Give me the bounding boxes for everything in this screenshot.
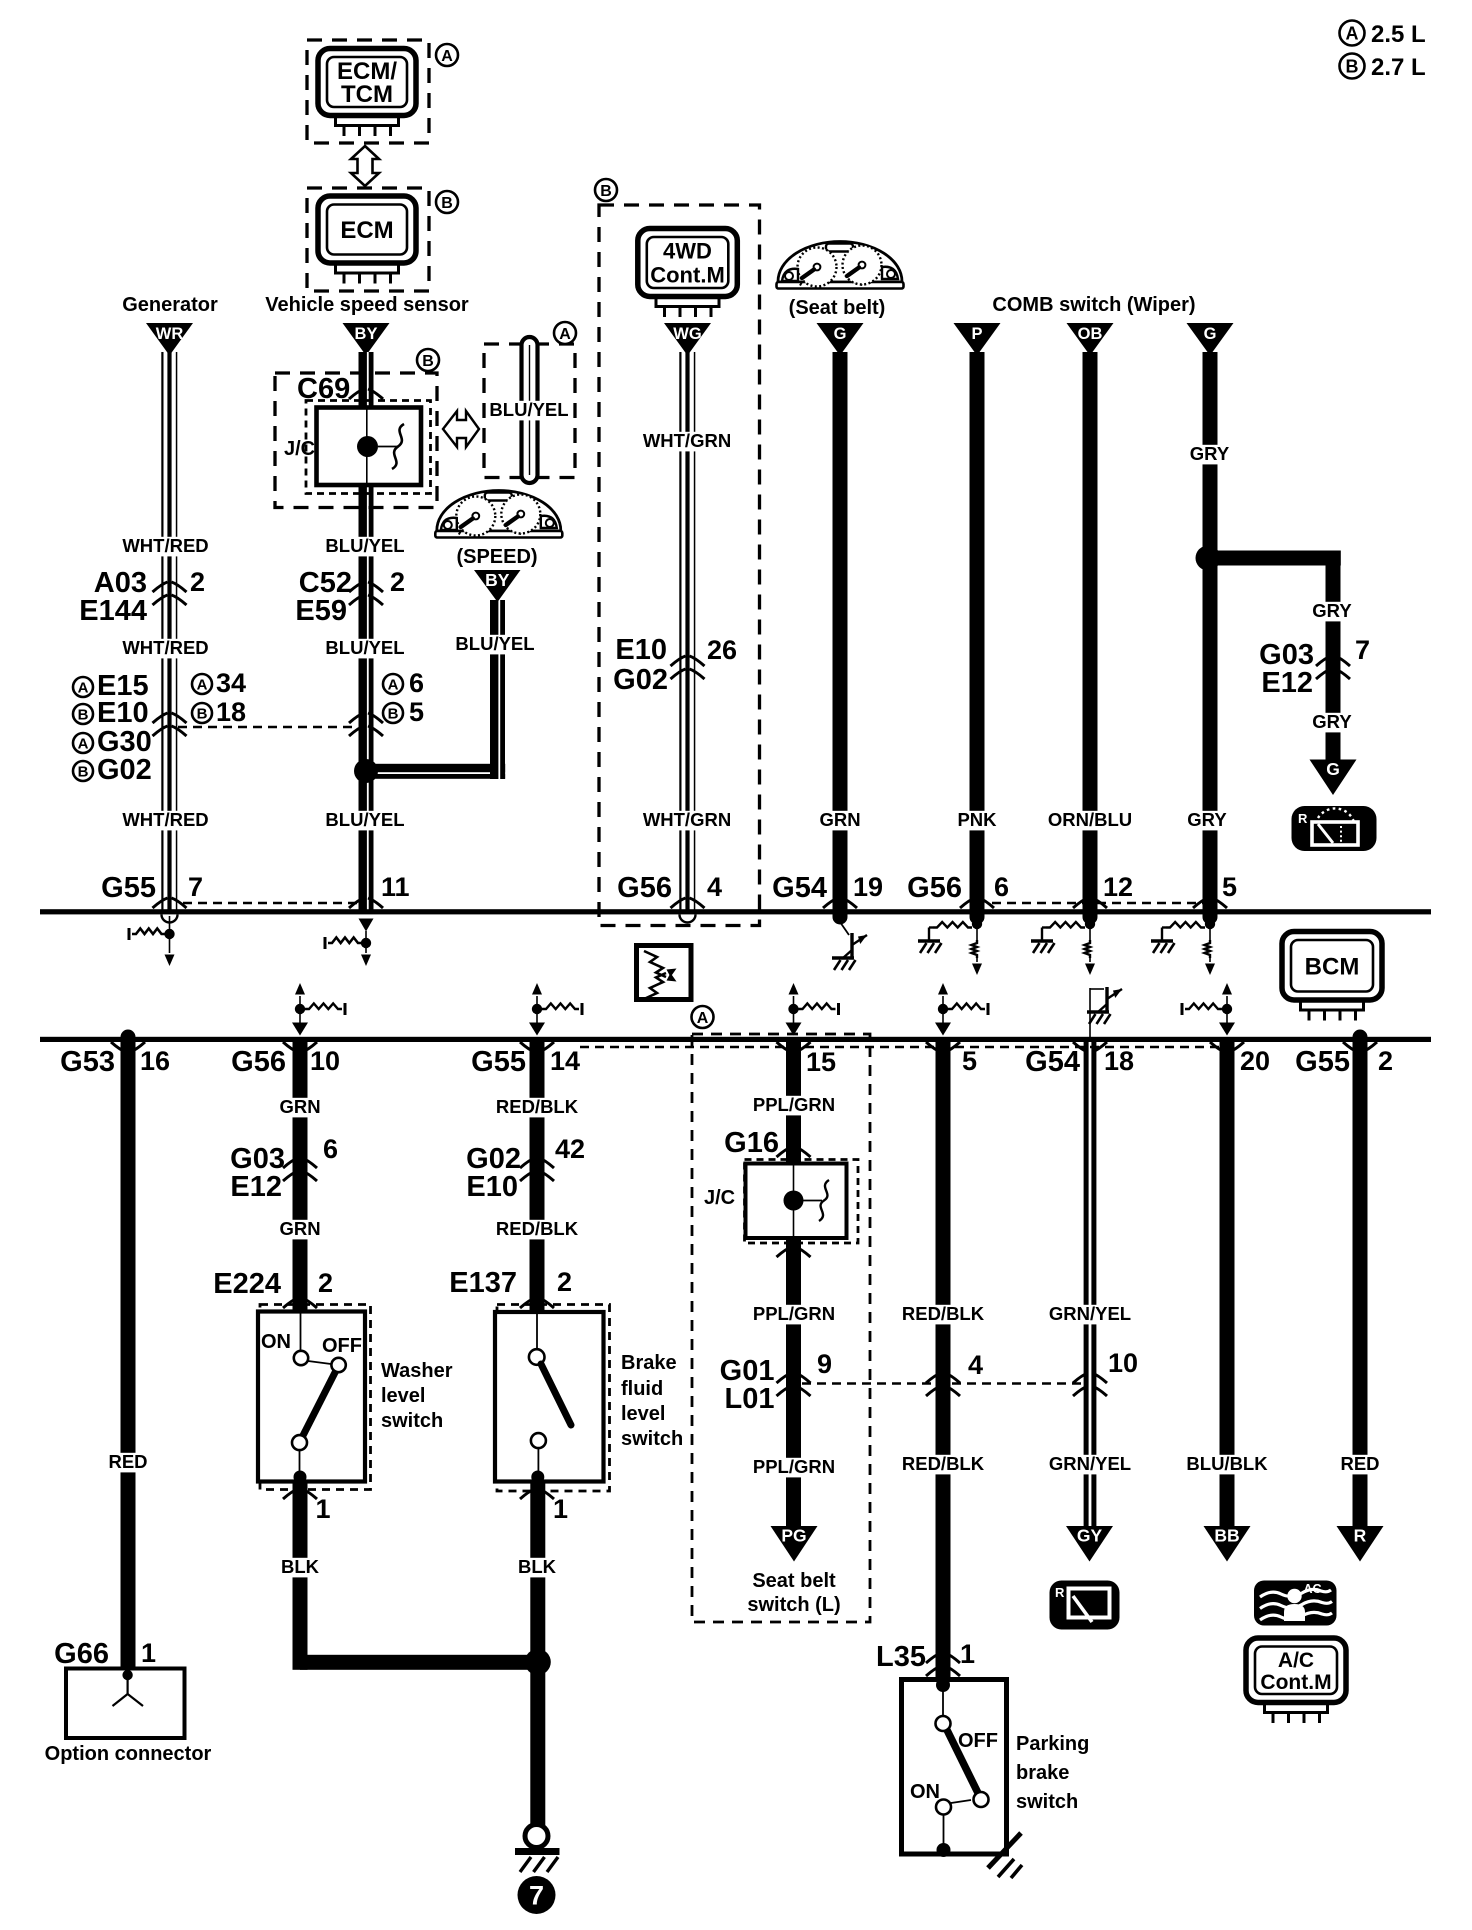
svg-text:BLU/YEL: BLU/YEL xyxy=(489,399,568,420)
svg-text:A: A xyxy=(78,679,89,696)
svg-text:14: 14 xyxy=(550,1046,580,1076)
svg-text:AC: AC xyxy=(1304,1582,1322,1596)
svg-text:OB: OB xyxy=(1078,325,1103,343)
svg-text:B: B xyxy=(388,705,399,722)
svg-text:BY: BY xyxy=(355,325,378,343)
svg-text:GRY: GRY xyxy=(1187,809,1227,830)
svg-text:L35: L35 xyxy=(876,1641,926,1673)
svg-text:5: 5 xyxy=(1222,872,1237,902)
svg-text:Brake: Brake xyxy=(621,1352,677,1374)
svg-text:fluid: fluid xyxy=(621,1378,663,1400)
svg-text:Vehicle speed sensor: Vehicle speed sensor xyxy=(265,294,469,316)
svg-text:2: 2 xyxy=(1378,1046,1393,1076)
svg-text:BLU/YEL: BLU/YEL xyxy=(325,637,404,658)
svg-text:OFF: OFF xyxy=(958,1730,998,1752)
svg-text:R: R xyxy=(1055,1585,1065,1600)
svg-text:WHT/GRN: WHT/GRN xyxy=(643,430,731,451)
svg-text:34: 34 xyxy=(216,668,246,698)
svg-text:Generator: Generator xyxy=(122,294,218,316)
svg-text:A: A xyxy=(559,326,571,343)
svg-text:6: 6 xyxy=(323,1134,338,1164)
svg-text:WR: WR xyxy=(156,325,184,343)
svg-text:G55: G55 xyxy=(1295,1046,1350,1078)
svg-text:Option connector: Option connector xyxy=(45,1743,212,1765)
svg-text:G56: G56 xyxy=(617,872,672,904)
svg-text:G53: G53 xyxy=(60,1046,115,1078)
svg-text:BLK: BLK xyxy=(518,1556,557,1577)
svg-text:COMB switch (Wiper): COMB switch (Wiper) xyxy=(992,294,1195,316)
svg-text:RED/BLK: RED/BLK xyxy=(496,1096,579,1117)
svg-text:BCM: BCM xyxy=(1305,953,1360,980)
svg-text:2: 2 xyxy=(557,1267,572,1297)
svg-text:Cont.M: Cont.M xyxy=(1260,1671,1331,1694)
svg-text:B: B xyxy=(78,706,89,723)
svg-text:19: 19 xyxy=(853,872,883,902)
svg-text:7: 7 xyxy=(529,1881,544,1911)
svg-text:GRY: GRY xyxy=(1312,600,1352,621)
svg-text:BLU/YEL: BLU/YEL xyxy=(325,535,404,556)
svg-text:TCM: TCM xyxy=(341,81,393,108)
svg-text:RED/BLK: RED/BLK xyxy=(902,1303,985,1324)
svg-text:WHT/RED: WHT/RED xyxy=(122,637,208,658)
svg-text:GRY: GRY xyxy=(1190,443,1230,464)
svg-text:E137: E137 xyxy=(449,1267,517,1299)
svg-text:A/C: A/C xyxy=(1278,1649,1314,1672)
svg-text:L01: L01 xyxy=(725,1383,775,1415)
svg-text:level: level xyxy=(621,1403,665,1425)
svg-text:GRN: GRN xyxy=(279,1096,320,1117)
svg-text:ORN/BLU: ORN/BLU xyxy=(1048,809,1132,830)
svg-text:6: 6 xyxy=(994,872,1009,902)
svg-text:B: B xyxy=(441,195,453,212)
svg-text:Cont.M: Cont.M xyxy=(650,262,725,287)
svg-text:GRN: GRN xyxy=(819,809,860,830)
svg-text:G55: G55 xyxy=(101,872,156,904)
svg-text:BLK: BLK xyxy=(281,1556,320,1577)
svg-text:1: 1 xyxy=(960,1639,975,1669)
svg-text:G: G xyxy=(834,325,847,343)
svg-text:switch: switch xyxy=(621,1428,683,1450)
svg-text:G56: G56 xyxy=(231,1046,286,1078)
svg-text:5: 5 xyxy=(409,697,424,727)
svg-text:E12: E12 xyxy=(230,1171,282,1203)
svg-text:R: R xyxy=(1298,811,1308,826)
svg-text:BLU/YEL: BLU/YEL xyxy=(455,633,534,654)
svg-text:2.5 L: 2.5 L xyxy=(1371,21,1426,48)
svg-text:A: A xyxy=(197,676,208,693)
svg-text:G54: G54 xyxy=(772,872,827,904)
svg-text:2.7 L: 2.7 L xyxy=(1371,54,1426,81)
svg-text:9: 9 xyxy=(817,1349,832,1379)
svg-text:ON: ON xyxy=(910,1781,940,1803)
svg-text:GRN/YEL: GRN/YEL xyxy=(1049,1453,1131,1474)
svg-text:RED/BLK: RED/BLK xyxy=(902,1453,985,1474)
svg-text:1: 1 xyxy=(141,1638,156,1668)
svg-text:2: 2 xyxy=(318,1268,333,1298)
svg-text:10: 10 xyxy=(1108,1348,1138,1378)
svg-text:GY: GY xyxy=(1077,1526,1103,1546)
svg-text:G02: G02 xyxy=(97,754,152,786)
svg-text:J/C: J/C xyxy=(284,438,315,460)
svg-text:10: 10 xyxy=(310,1046,340,1076)
svg-text:brake: brake xyxy=(1016,1762,1069,1784)
svg-text:ON: ON xyxy=(261,1331,291,1353)
svg-text:7: 7 xyxy=(1355,635,1370,665)
svg-text:Seat belt: Seat belt xyxy=(752,1570,836,1592)
svg-text:G02: G02 xyxy=(613,664,668,696)
svg-text:26: 26 xyxy=(707,635,737,665)
svg-text:18: 18 xyxy=(1104,1046,1134,1076)
svg-text:BB: BB xyxy=(1214,1526,1239,1546)
svg-text:G16: G16 xyxy=(724,1127,779,1159)
svg-text:GRN: GRN xyxy=(279,1218,320,1239)
svg-text:(SPEED): (SPEED) xyxy=(456,546,537,568)
svg-text:B: B xyxy=(197,705,208,722)
svg-text:G56: G56 xyxy=(907,872,962,904)
svg-text:PPL/GRN: PPL/GRN xyxy=(753,1094,835,1115)
svg-text:E12: E12 xyxy=(1261,667,1313,699)
svg-text:ECM: ECM xyxy=(340,217,393,244)
svg-text:4WD: 4WD xyxy=(663,238,712,263)
svg-text:PG: PG xyxy=(781,1526,806,1546)
svg-text:B: B xyxy=(600,183,612,200)
svg-text:G55: G55 xyxy=(471,1046,526,1078)
svg-text:BLU/YEL: BLU/YEL xyxy=(325,809,404,830)
svg-text:RED/BLK: RED/BLK xyxy=(496,1218,579,1239)
svg-text:A: A xyxy=(388,676,399,693)
svg-text:2: 2 xyxy=(190,567,205,597)
svg-text:E10: E10 xyxy=(97,697,149,729)
svg-text:E10: E10 xyxy=(615,634,667,666)
svg-text:WG: WG xyxy=(673,325,701,343)
svg-text:R: R xyxy=(1354,1526,1367,1546)
svg-text:Parking: Parking xyxy=(1016,1733,1089,1755)
svg-text:18: 18 xyxy=(216,697,246,727)
svg-text:B: B xyxy=(422,353,434,370)
svg-text:A: A xyxy=(1346,24,1359,44)
svg-text:E224: E224 xyxy=(213,1268,281,1300)
svg-text:G: G xyxy=(1204,325,1217,343)
svg-text:2: 2 xyxy=(390,567,405,597)
svg-text:4: 4 xyxy=(968,1350,983,1380)
svg-text:A: A xyxy=(697,1010,709,1027)
svg-text:7: 7 xyxy=(188,872,203,902)
svg-text:A: A xyxy=(441,48,453,65)
svg-text:OFF: OFF xyxy=(322,1335,362,1357)
svg-text:B: B xyxy=(1346,57,1359,77)
svg-text:PPL/GRN: PPL/GRN xyxy=(753,1303,835,1324)
svg-text:5: 5 xyxy=(962,1046,977,1076)
svg-text:G66: G66 xyxy=(54,1638,109,1670)
svg-text:E59: E59 xyxy=(295,595,347,627)
svg-text:switch: switch xyxy=(1016,1791,1078,1813)
svg-text:PNK: PNK xyxy=(957,809,997,830)
svg-text:1: 1 xyxy=(553,1494,568,1524)
svg-text:switch (L): switch (L) xyxy=(747,1594,840,1616)
svg-text:Washer: Washer xyxy=(381,1360,453,1382)
svg-text:GRY: GRY xyxy=(1312,711,1352,732)
svg-text:GRN/YEL: GRN/YEL xyxy=(1049,1303,1131,1324)
svg-text:(Seat belt): (Seat belt) xyxy=(789,297,886,319)
svg-text:B: B xyxy=(78,763,89,780)
svg-text:WHT/GRN: WHT/GRN xyxy=(643,809,731,830)
svg-text:1: 1 xyxy=(316,1494,331,1524)
svg-text:20: 20 xyxy=(1240,1046,1270,1076)
svg-text:G: G xyxy=(1326,759,1340,779)
svg-text:G54: G54 xyxy=(1025,1046,1080,1078)
svg-text:WHT/RED: WHT/RED xyxy=(122,809,208,830)
svg-text:12: 12 xyxy=(1103,872,1133,902)
svg-text:WHT/RED: WHT/RED xyxy=(122,535,208,556)
svg-text:switch: switch xyxy=(381,1410,443,1432)
svg-text:RED: RED xyxy=(1340,1453,1379,1474)
svg-text:4: 4 xyxy=(707,872,722,902)
svg-text:BY: BY xyxy=(485,570,510,590)
svg-text:11: 11 xyxy=(381,872,410,902)
svg-text:42: 42 xyxy=(555,1134,585,1164)
svg-text:BLU/BLK: BLU/BLK xyxy=(1186,1453,1268,1474)
svg-text:16: 16 xyxy=(140,1046,170,1076)
svg-text:A: A xyxy=(78,735,89,752)
svg-text:E144: E144 xyxy=(79,595,147,627)
svg-text:E10: E10 xyxy=(466,1171,518,1203)
svg-text:level: level xyxy=(381,1385,425,1407)
svg-text:J/C: J/C xyxy=(704,1187,735,1209)
svg-text:6: 6 xyxy=(409,668,424,698)
svg-text:15: 15 xyxy=(806,1047,836,1077)
svg-text:RED: RED xyxy=(108,1451,147,1472)
svg-text:P: P xyxy=(971,325,982,343)
svg-text:PPL/GRN: PPL/GRN xyxy=(753,1456,835,1477)
